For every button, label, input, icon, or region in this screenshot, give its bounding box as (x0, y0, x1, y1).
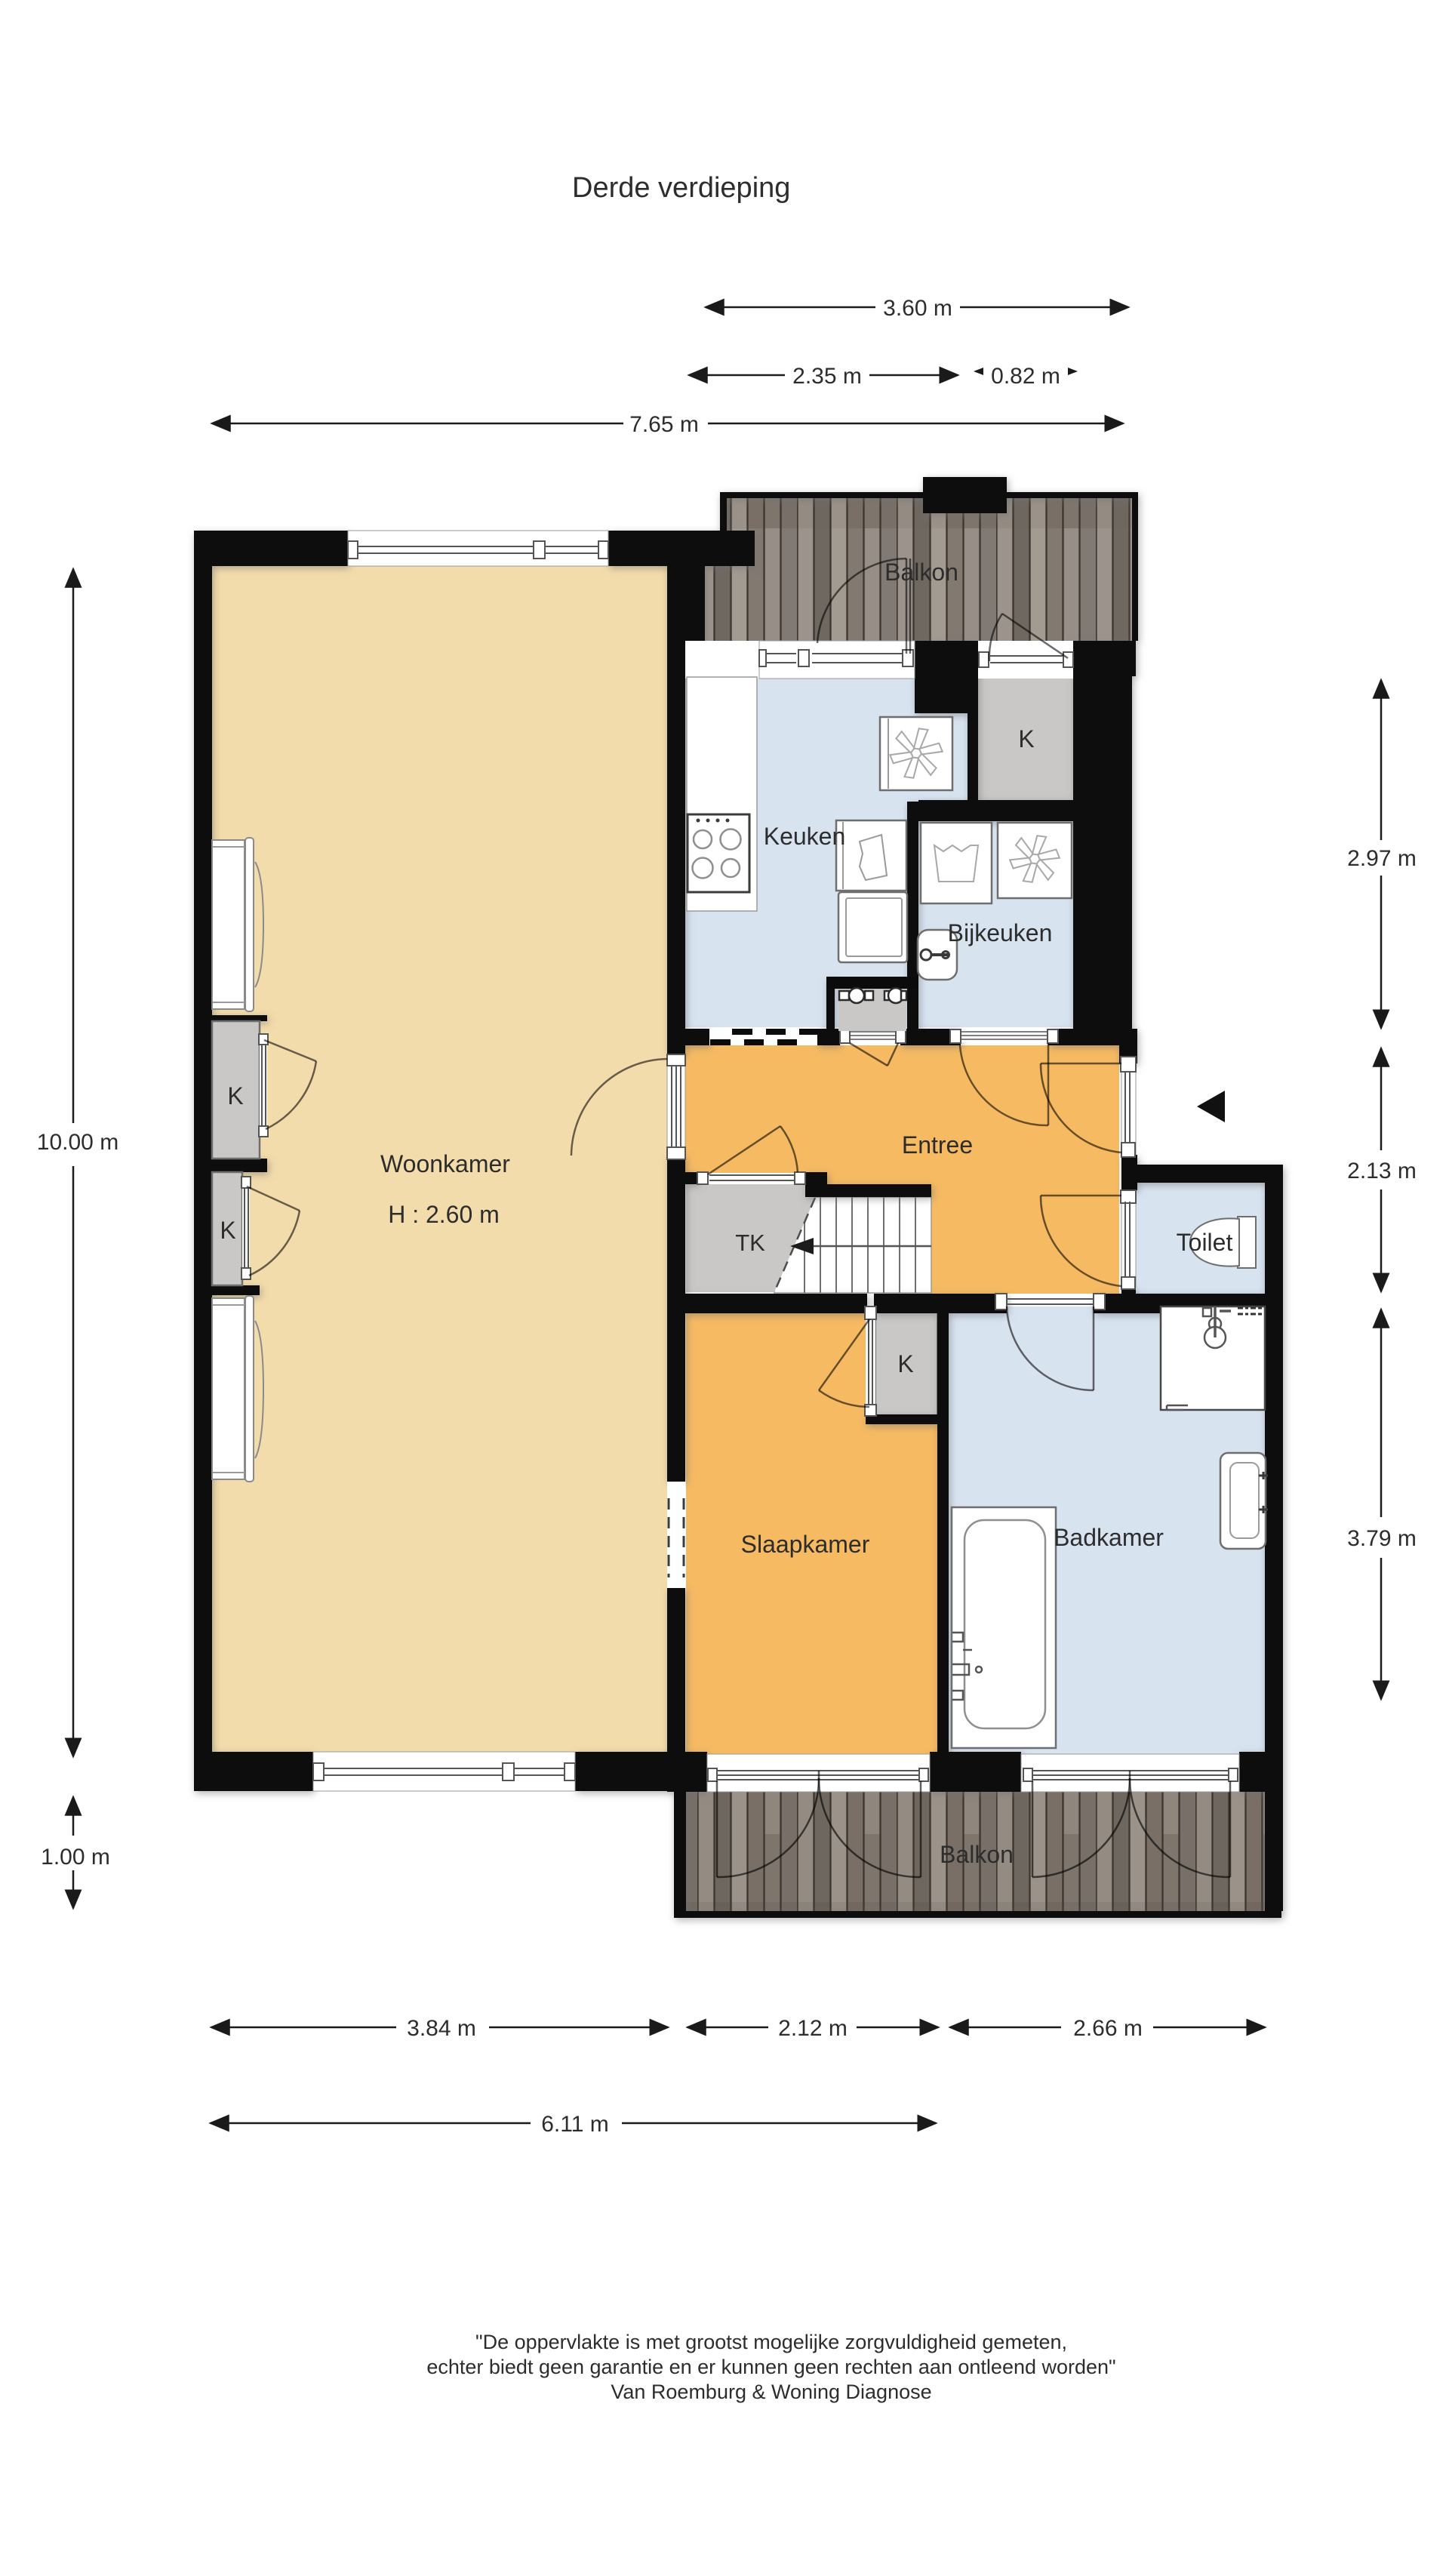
svg-text:2.35 m: 2.35 m (792, 364, 862, 389)
svg-text:0.82 m: 0.82 m (991, 364, 1060, 389)
svg-text:H : 2.60 m: H : 2.60 m (388, 1201, 500, 1228)
svg-text:Woonkamer: Woonkamer (380, 1150, 510, 1177)
svg-text:echter biedt geen garantie en: echter biedt geen garantie en er kunnen … (426, 2356, 1115, 2378)
svg-text:Toilet: Toilet (1177, 1229, 1233, 1256)
svg-text:TK: TK (735, 1230, 765, 1256)
svg-text:2.66 m: 2.66 m (1073, 2016, 1143, 2041)
svg-text:Van Roemburg & Woning Diagnose: Van Roemburg & Woning Diagnose (611, 2381, 931, 2403)
svg-text:3.60 m: 3.60 m (883, 296, 952, 321)
svg-text:3.79 m: 3.79 m (1347, 1526, 1417, 1551)
svg-text:3.84 m: 3.84 m (407, 2016, 476, 2041)
svg-text:2.13 m: 2.13 m (1347, 1159, 1417, 1183)
svg-text:1.00 m: 1.00 m (41, 1845, 110, 1870)
svg-text:K: K (227, 1082, 243, 1109)
svg-text:6.11 m: 6.11 m (541, 2112, 609, 2137)
svg-text:K: K (1018, 725, 1034, 752)
svg-text:Badkamer: Badkamer (1054, 1524, 1164, 1551)
svg-text:7.65 m: 7.65 m (629, 412, 699, 437)
svg-text:Balkon: Balkon (884, 559, 958, 586)
svg-text:Slaapkamer: Slaapkamer (741, 1531, 870, 1558)
svg-text:10.00 m: 10.00 m (37, 1130, 118, 1155)
svg-text:Keuken: Keuken (764, 823, 846, 850)
svg-text:Entree: Entree (902, 1131, 973, 1159)
svg-text:K: K (220, 1217, 235, 1244)
svg-text:2.97 m: 2.97 m (1347, 846, 1417, 871)
svg-text:Bijkeuken: Bijkeuken (948, 919, 1053, 946)
svg-text:2.12 m: 2.12 m (778, 2016, 848, 2041)
svg-text:"De oppervlakte is met grootst: "De oppervlakte is met grootst mogelijke… (475, 2331, 1067, 2353)
svg-text:Balkon: Balkon (940, 1841, 1014, 1868)
svg-text:Derde verdieping: Derde verdieping (572, 172, 790, 204)
svg-text:K: K (897, 1350, 913, 1377)
